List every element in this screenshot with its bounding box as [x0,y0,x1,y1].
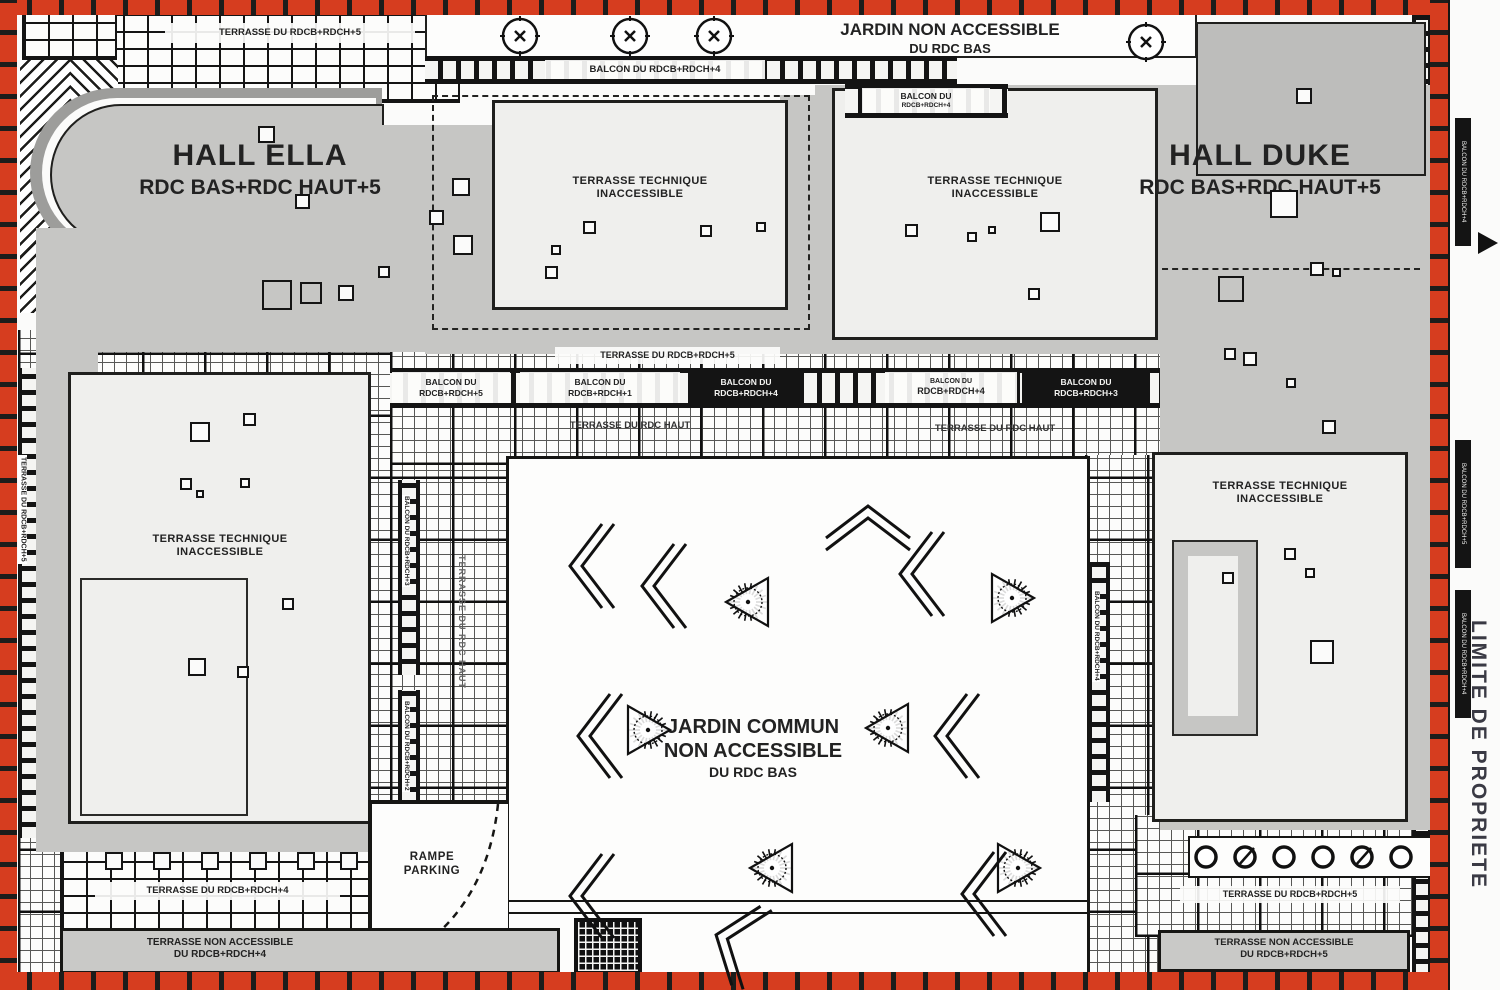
hall-duke-title: HALL DUKE RDC BAS+RDC HAUT+5 [1120,138,1400,200]
boundary-north [0,0,1448,15]
bottom-left-na-label: TERRASSE NON ACCESSIBLEDU RDCB+RDCH+4 [70,937,370,961]
garden-path-line-2 [509,912,1087,914]
boundary-east [1430,0,1448,990]
north-balcony-small-label: BALCON DU RDCB+RDCH+4 [862,88,990,113]
entrance-arrow-icon [1478,232,1498,254]
terrace-rdc-haut-west-label: TERRASSE DU RDC HAUT [520,420,740,432]
north-garden-label: JARDIN NON ACCESSIBLE DU RDC BAS [810,20,1090,57]
technical-terrace-a [492,100,788,310]
hall-ella-title: HALL ELLA RDC BAS+RDC HAUT+5 [105,138,415,200]
planter-strip [1188,836,1433,878]
technical-terrace-c-label: TERRASSE TECHNIQUEINACCESSIBLE [75,533,365,560]
right-edge-balcony-c: BALCON DU RDCB+RDCH+4 [1455,590,1471,718]
technical-terrace-d-label: TERRASSE TECHNIQUEINACCESSIBLE [1155,480,1405,507]
balcony-3-label: BALCON DURDCB+RDCH+3 [1022,370,1150,405]
balcony-1-label: BALCON DURDCB+RDCH+1 [520,372,680,403]
floor-plan: TERRASSE TECHNIQUEINACCESSIBLE TERRASSE … [0,0,1500,990]
left-edge-terrace-label: TERRASSE DU RDCB+RDCH+5 [18,455,27,564]
terrace-rdc-haut-vertical-label: TERRASSE DU RDC HAUT [456,555,467,689]
inner-balcony-v1-label: BALCON DU RDCB+RDCH+3 [402,495,410,587]
parking-ramp-label: RAMPEPARKING [372,850,492,878]
terrace-rdc-haut-east-label: TERRASSE DU RDC HAUT [885,423,1105,435]
garden-path-line-1 [509,900,1087,902]
balcony-5-label: BALCON DURDCB+RDCH+5 [392,372,510,403]
bottom-right-terrace-label: TERRASSE DU RDCB+RDCH+5 [1180,886,1400,903]
technical-terrace-b-label: TERRASSE TECHNIQUEINACCESSIBLE [835,175,1155,202]
right-edge-balcony-a: BALCON DU RDCB+RDCH+4 [1455,118,1471,246]
boundary-west [0,0,17,990]
paving-grid-corner [22,10,117,60]
inner-balcony-v3-label: BALCON DU RDCB+RDCH+4 [1092,590,1100,682]
mid-terrace-label: TERRASSE DU RDCB+RDCH+5 [555,347,780,364]
north-balcony-label: BALCON DU RDCB+RDCH+4 [545,60,765,79]
boundary-east-line [1448,0,1450,990]
technical-terrace-a-label: TERRASSE TECHNIQUEINACCESSIBLE [495,175,785,202]
balcony-4a-label: BALCON DURDCB+RDCH+4 [688,370,804,405]
bottom-right-na-label: TERRASSE NON ACCESSIBLEDU RDCB+RDCH+5 [1162,937,1406,960]
technical-terrace-d-stair-inner [1188,556,1238,716]
inner-balcony-v2-label: BALCON DU RDCB+RDCH+2 [402,700,410,792]
central-garden-label: JARDIN COMMUN NON ACCESSIBLE DU RDC BAS [608,715,898,781]
top-left-terrace-label: TERRASSE DU RDCB+RDCH+5 [165,23,415,43]
technical-terrace-c-inner [80,578,248,816]
boundary-south [0,972,1448,990]
garden-grate [574,918,642,975]
technical-terrace-b [832,88,1158,340]
balcony-4b-label: BALCON DURDCB+RDCH+4 [885,372,1017,403]
bottom-left-terrace-label: TERRASSE DU RDCB+RDCH+4 [95,882,340,900]
right-edge-balcony-b: BALCON DU RDCB+RDCH+5 [1455,440,1471,568]
